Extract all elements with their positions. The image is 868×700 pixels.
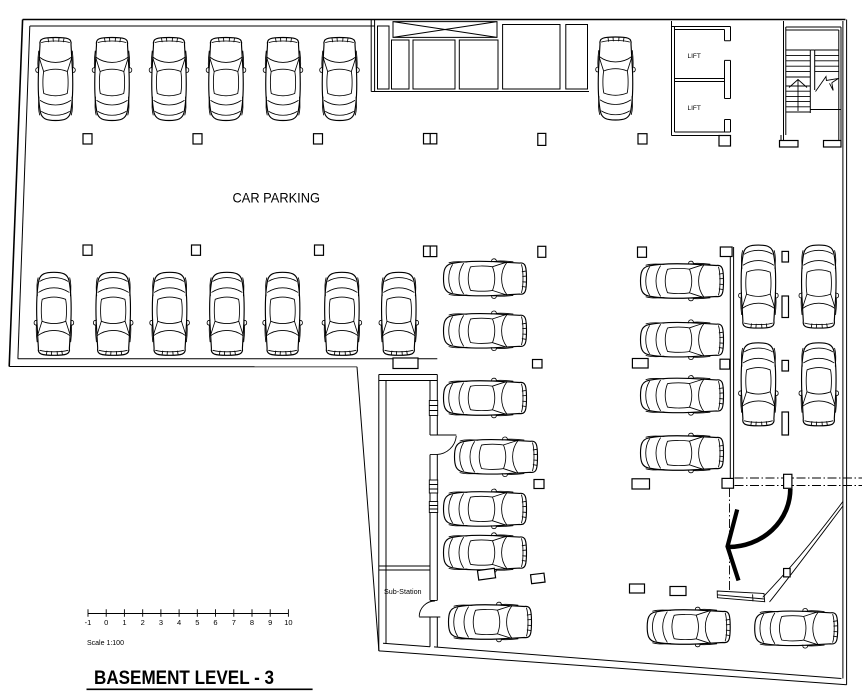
svg-text:7: 7 <box>232 618 236 627</box>
svg-text:-1: -1 <box>85 618 92 627</box>
svg-text:Sub-Station: Sub-Station <box>384 587 422 596</box>
svg-text:9: 9 <box>268 618 272 627</box>
svg-text:BASEMENT LEVEL - 3: BASEMENT LEVEL - 3 <box>94 668 274 689</box>
svg-text:1: 1 <box>122 618 126 627</box>
svg-text:5: 5 <box>195 618 199 627</box>
svg-text:0: 0 <box>104 618 108 627</box>
svg-text:LIFT: LIFT <box>688 105 701 112</box>
svg-text:3: 3 <box>159 618 163 627</box>
svg-text:LIFT: LIFT <box>688 53 701 60</box>
svg-text:6: 6 <box>213 618 217 627</box>
svg-text:CAR PARKING: CAR PARKING <box>233 190 321 205</box>
svg-text:2: 2 <box>141 618 145 627</box>
svg-text:10: 10 <box>284 618 292 627</box>
svg-text:Scale 1:100: Scale 1:100 <box>87 640 124 647</box>
svg-text:4: 4 <box>177 618 181 627</box>
svg-text:8: 8 <box>250 618 254 627</box>
